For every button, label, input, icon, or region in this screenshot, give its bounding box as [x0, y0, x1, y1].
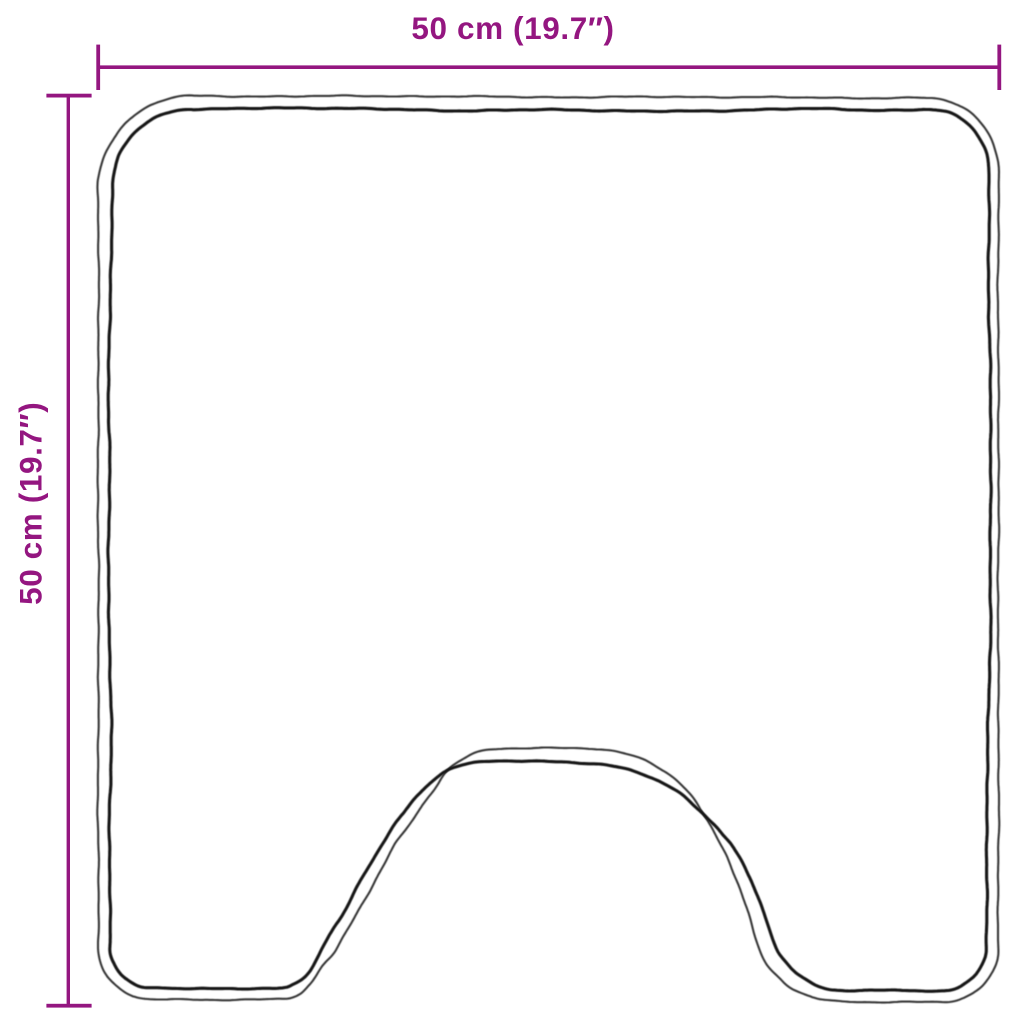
svg-text:50 cm (19.7″): 50 cm (19.7″)	[411, 10, 614, 46]
svg-text:50 cm (19.7″): 50 cm (19.7″)	[12, 402, 48, 605]
